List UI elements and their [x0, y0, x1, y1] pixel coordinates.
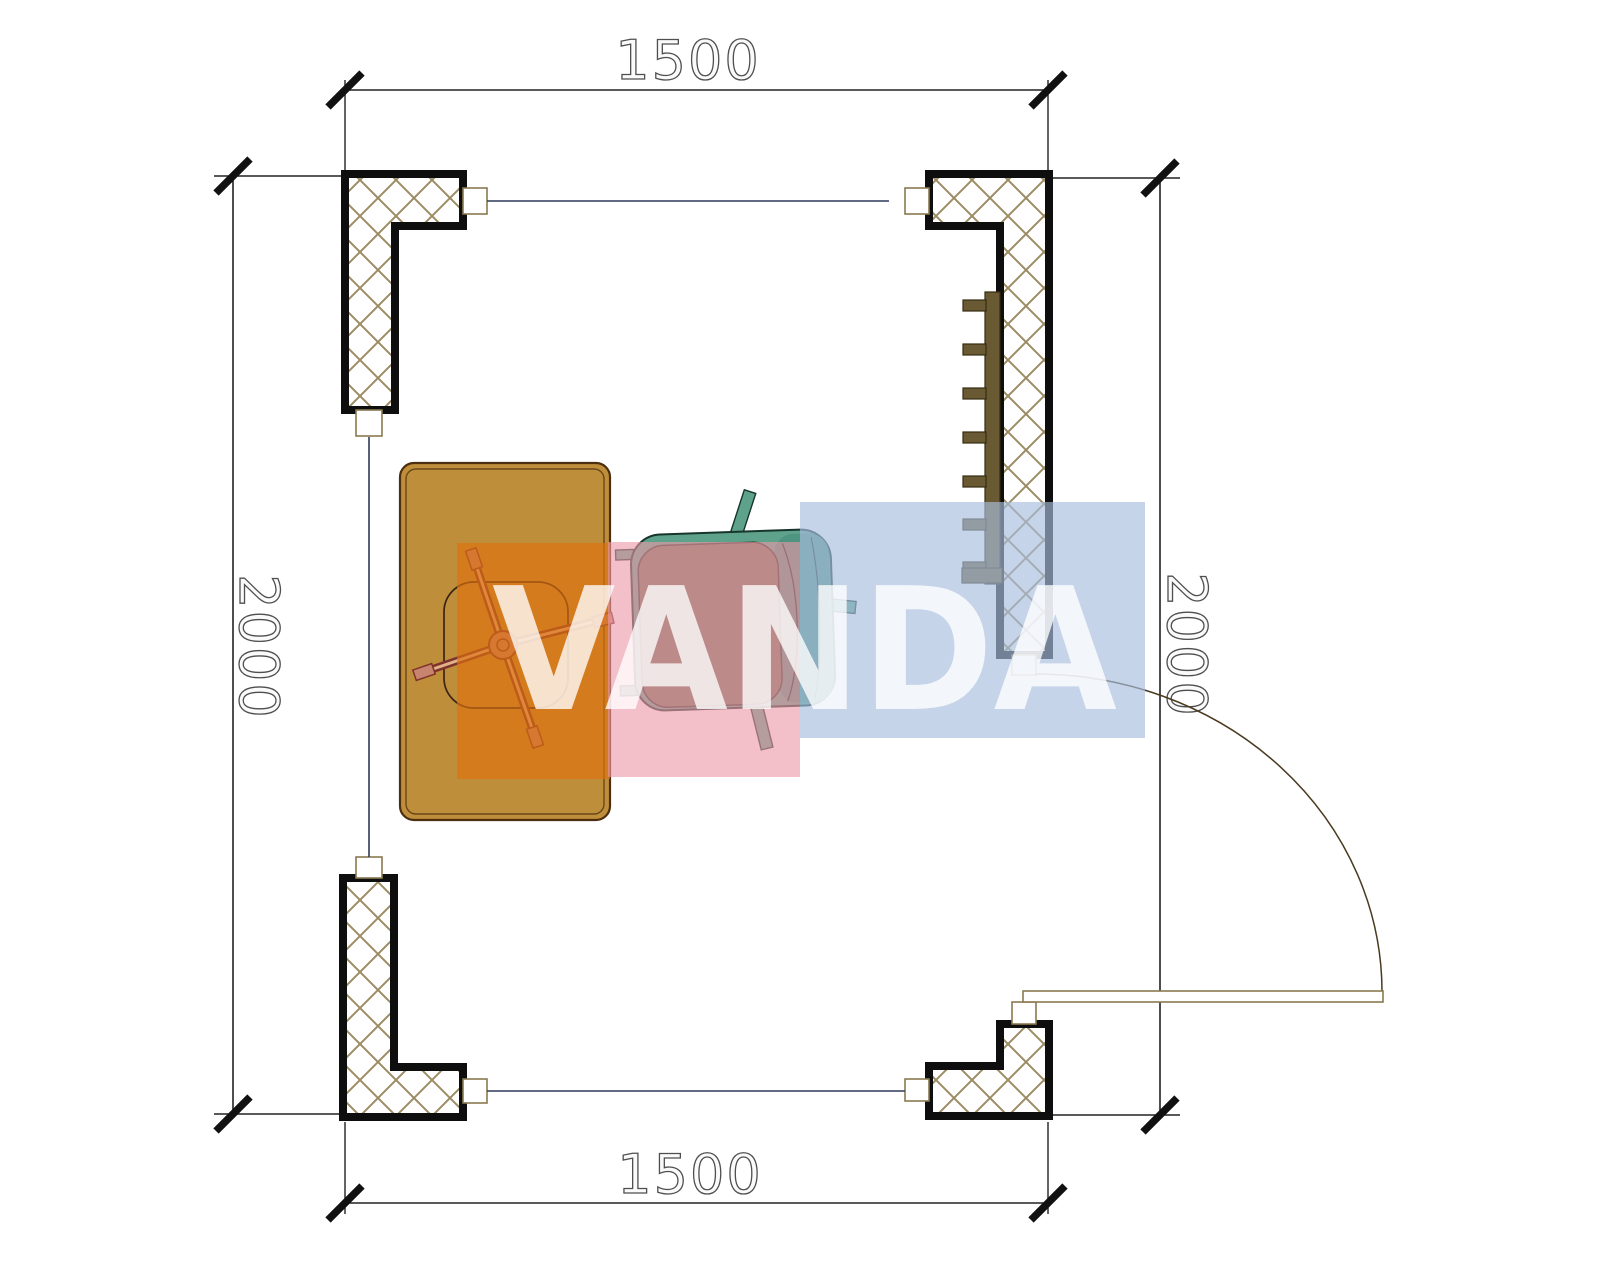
- watermark-text: VANDA: [492, 552, 1117, 750]
- wall-segment: [345, 174, 463, 410]
- floor-plan-canvas: 1500 1500 2000 2000: [0, 0, 1600, 1280]
- wall-connector: [356, 857, 382, 878]
- radiator-fin: [963, 476, 986, 487]
- wall-top-left: [345, 174, 487, 436]
- wall-segment: [929, 1024, 1049, 1116]
- dimension-right-label: 2000: [1155, 572, 1218, 717]
- dimension-top-label: 1500: [615, 29, 760, 92]
- wall-connector: [463, 1079, 487, 1103]
- radiator-fin: [963, 344, 986, 355]
- dimension-bottom-label: 1500: [617, 1143, 762, 1206]
- wall-bottom-right: [905, 1002, 1049, 1116]
- wall-connector: [356, 410, 382, 436]
- radiator-fin: [963, 388, 986, 399]
- floor-plan-drawing: 1500 1500 2000 2000: [0, 0, 1600, 1280]
- wall-connector: [905, 1079, 929, 1101]
- radiator-fin: [963, 432, 986, 443]
- armchair-foot: [731, 490, 756, 536]
- wall-connector: [905, 188, 929, 214]
- watermark: VANDA: [457, 502, 1145, 779]
- dimension-top: 1500: [328, 29, 1065, 170]
- radiator-fin: [963, 300, 986, 311]
- wall-connector: [463, 188, 487, 214]
- dimension-bottom: 1500: [328, 1122, 1065, 1220]
- door-jamb: [1012, 1002, 1036, 1024]
- door-leaf: [1023, 991, 1383, 1002]
- dimension-left-label: 2000: [227, 574, 290, 719]
- dimension-left: 2000: [214, 159, 341, 1131]
- wall-segment: [343, 878, 463, 1117]
- wall-bottom-left: [343, 857, 487, 1117]
